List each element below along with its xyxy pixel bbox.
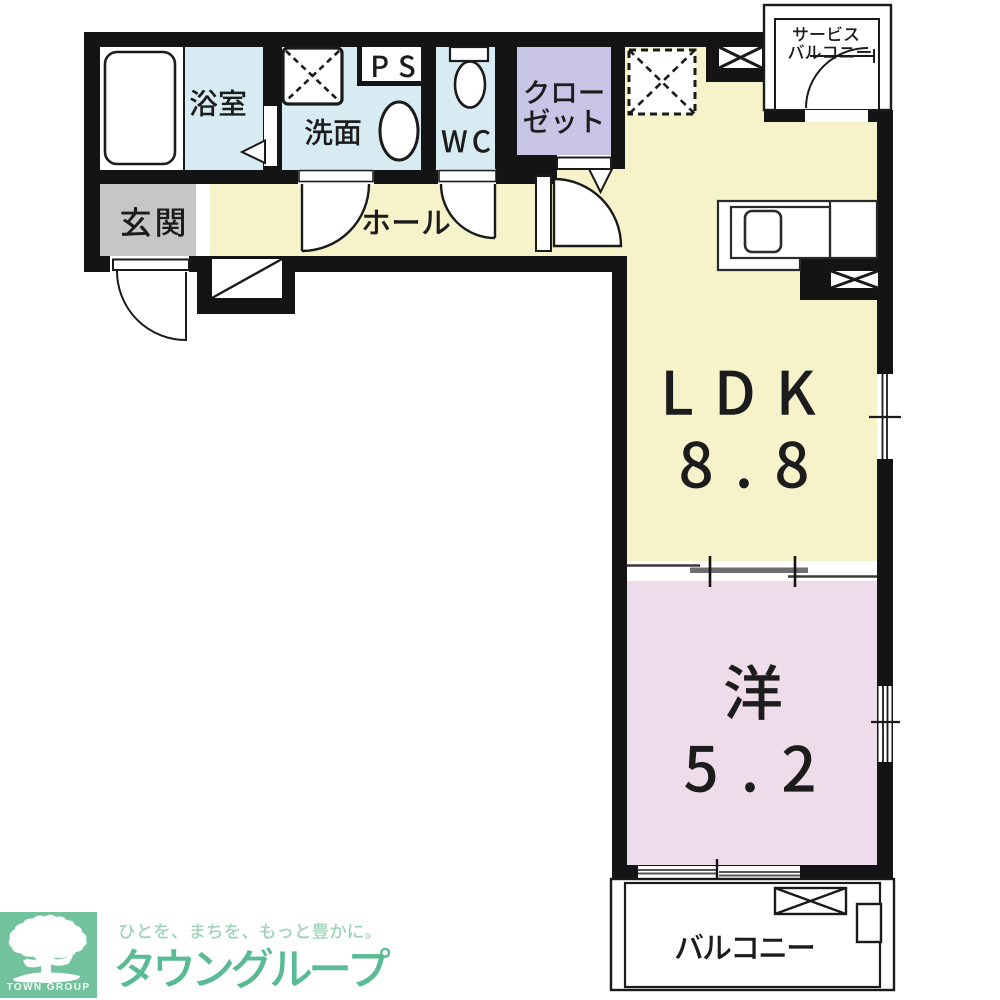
- svg-text:TOWN GROUP: TOWN GROUP: [7, 982, 91, 993]
